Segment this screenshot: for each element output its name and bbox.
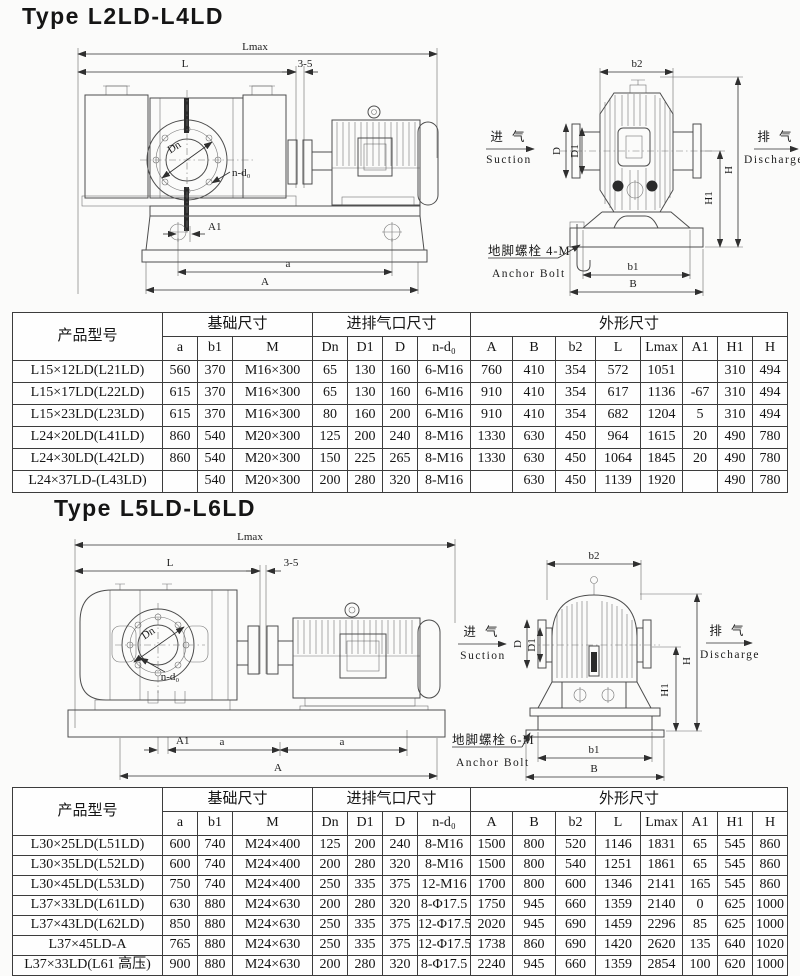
value-cell: 740 [198, 856, 233, 876]
col-group-outline: 外形尺寸 [471, 788, 788, 812]
value-cell: 100 [683, 956, 718, 976]
value-cell: 630 [163, 896, 198, 916]
value-cell: 310 [718, 405, 753, 427]
value-cell: 560 [163, 361, 198, 383]
value-cell: 1615 [641, 427, 683, 449]
value-cell: 880 [198, 936, 233, 956]
value-cell [163, 471, 198, 493]
dim-label-d1: D1 [526, 638, 538, 651]
table-row: L37×33LD(L61 高压)900880M24×6302002803208-… [13, 956, 788, 976]
value-cell: 160 [383, 383, 418, 405]
value-cell: 540 [198, 427, 233, 449]
value-cell: 320 [383, 856, 418, 876]
value-cell: 780 [753, 471, 788, 493]
value-cell: 660 [556, 956, 596, 976]
value-cell: 370 [198, 383, 233, 405]
model-cell: L37×33LD(L61 高压) [13, 956, 163, 976]
value-cell: 540 [198, 449, 233, 471]
dim-label-b: B [629, 278, 636, 290]
value-cell: 160 [383, 361, 418, 383]
col-header: B [513, 337, 556, 361]
col-header: A1 [683, 337, 718, 361]
value-cell: M16×300 [233, 405, 313, 427]
model-cell: L37×45LD-A [13, 936, 163, 956]
value-cell: 250 [313, 916, 348, 936]
drawing-l2ld-l4ld: Lmax L 3-5 [0, 38, 800, 308]
value-cell: 860 [753, 856, 788, 876]
value-cell: 8-M16 [418, 856, 471, 876]
value-cell: 520 [556, 836, 596, 856]
value-cell: 860 [753, 836, 788, 856]
value-cell: 310 [718, 383, 753, 405]
model-cell: L24×20LD(L41LD) [13, 427, 163, 449]
value-cell: 540 [556, 856, 596, 876]
value-cell: 964 [596, 427, 641, 449]
value-cell: 8-M16 [418, 471, 471, 493]
value-cell: 540 [198, 471, 233, 493]
value-cell: 494 [753, 405, 788, 427]
value-cell: 620 [718, 956, 753, 976]
value-cell: 625 [718, 896, 753, 916]
dim-label-h1: H1 [703, 191, 715, 204]
col-header: Lmax [641, 812, 683, 836]
value-cell: 860 [753, 876, 788, 896]
dim-label-h: H [681, 657, 693, 665]
value-cell: 310 [718, 361, 753, 383]
value-cell: 1000 [753, 896, 788, 916]
value-cell: 1750 [471, 896, 513, 916]
col-header: b1 [198, 337, 233, 361]
value-cell: 860 [163, 427, 198, 449]
value-cell: 850 [163, 916, 198, 936]
col-header: A [471, 337, 513, 361]
value-cell: 545 [718, 856, 753, 876]
value-cell: 200 [313, 856, 348, 876]
value-cell: 910 [471, 405, 513, 427]
model-cell: L30×45LD(L53LD) [13, 876, 163, 896]
col-header: D [383, 337, 418, 361]
value-cell: 320 [383, 896, 418, 916]
value-cell: 12-Φ17.5 [418, 916, 471, 936]
value-cell: 65 [683, 856, 718, 876]
dim-label-d: D [512, 640, 524, 648]
value-cell: 780 [753, 449, 788, 471]
value-cell: 370 [198, 361, 233, 383]
value-cell: 1146 [596, 836, 641, 856]
side-view-l5ld: Lmax L 3-5 Dn [68, 531, 455, 780]
dim-label-lmax: Lmax [242, 41, 268, 53]
value-cell: 320 [383, 956, 418, 976]
value-cell: M24×630 [233, 956, 313, 976]
value-cell: 490 [718, 449, 753, 471]
value-cell: 945 [513, 916, 556, 936]
value-cell: 6-M16 [418, 405, 471, 427]
value-cell: 335 [348, 876, 383, 896]
value-cell: 682 [596, 405, 641, 427]
value-cell: 945 [513, 896, 556, 916]
col-group-base: 基础尺寸 [163, 313, 313, 337]
value-cell: 490 [718, 427, 753, 449]
value-cell: 945 [513, 956, 556, 976]
value-cell: 765 [163, 936, 198, 956]
value-cell: 1251 [596, 856, 641, 876]
value-cell: 65 [313, 383, 348, 405]
value-cell: 450 [556, 427, 596, 449]
table-row: L15×12LD(L21LD)560370M16×300651301606-M1… [13, 361, 788, 383]
dim-label-h: H [723, 166, 735, 174]
value-cell: M16×300 [233, 383, 313, 405]
dim-label-a1: A1 [208, 221, 221, 233]
value-cell: 1459 [596, 916, 641, 936]
value-cell: 280 [348, 471, 383, 493]
value-cell: 165 [683, 876, 718, 896]
suction-label-cn: 进 气 [490, 129, 527, 144]
dim-label-ndo: n-d₀ [161, 671, 180, 683]
col-header: M [233, 812, 313, 836]
value-cell: 130 [348, 383, 383, 405]
value-cell: 1136 [641, 383, 683, 405]
value-cell: M16×300 [233, 361, 313, 383]
value-cell: 225 [348, 449, 383, 471]
model-cell: L15×23LD(L23LD) [13, 405, 163, 427]
value-cell: 910 [471, 383, 513, 405]
table-row: L30×35LD(L52LD)600740M24×4002002803208-M… [13, 856, 788, 876]
value-cell: 335 [348, 936, 383, 956]
value-cell: 690 [556, 936, 596, 956]
col-header: H [753, 337, 788, 361]
value-cell: 600 [163, 856, 198, 876]
dim-label-A: A [274, 762, 282, 774]
side-view-l2ld: Lmax L 3-5 [78, 41, 438, 294]
value-cell: 800 [513, 836, 556, 856]
value-cell: 1359 [596, 956, 641, 976]
value-cell: 1330 [471, 427, 513, 449]
dim-label-b1: b1 [628, 261, 639, 273]
value-cell: 320 [383, 471, 418, 493]
value-cell: 1700 [471, 876, 513, 896]
value-cell: 617 [596, 383, 641, 405]
value-cell: 1020 [753, 936, 788, 956]
value-cell: 880 [198, 896, 233, 916]
value-cell: 1330 [471, 449, 513, 471]
value-cell: M20×300 [233, 427, 313, 449]
value-cell: 200 [348, 836, 383, 856]
value-cell: 2620 [641, 936, 683, 956]
dim-label-ndo: n-d₀ [232, 167, 251, 179]
value-cell: 5 [683, 405, 718, 427]
value-cell: M24×630 [233, 896, 313, 916]
value-cell: 690 [556, 916, 596, 936]
value-cell: 1000 [753, 916, 788, 936]
value-cell: 125 [313, 427, 348, 449]
value-cell: 630 [513, 449, 556, 471]
value-cell: 1500 [471, 836, 513, 856]
value-cell: 375 [383, 876, 418, 896]
value-cell: 8-M16 [418, 427, 471, 449]
value-cell: 1920 [641, 471, 683, 493]
model-cell: L24×37LD-(L43LD) [13, 471, 163, 493]
value-cell: 6-M16 [418, 383, 471, 405]
value-cell: 8-Φ17.5 [418, 956, 471, 976]
value-cell: 335 [348, 916, 383, 936]
drawing-l5ld-l6ld: Lmax L 3-5 Dn [0, 528, 800, 785]
dim-label-A: A [261, 276, 269, 288]
value-cell: 135 [683, 936, 718, 956]
value-cell: 65 [313, 361, 348, 383]
col-header: H [753, 812, 788, 836]
value-cell: 860 [163, 449, 198, 471]
end-view-l5ld: b2 D D1 [452, 550, 760, 781]
section2-title: Type L5LD-L6LD [54, 495, 256, 522]
dim-label-l: L [182, 58, 189, 70]
col-header: M [233, 337, 313, 361]
table-row: L30×25LD(L51LD)600740M24×4001252002408-M… [13, 836, 788, 856]
anchor-label-en: Anchor Bolt [456, 757, 530, 769]
value-cell: 780 [753, 427, 788, 449]
col-header: b2 [556, 337, 596, 361]
value-cell: 200 [348, 427, 383, 449]
model-cell: L37×33LD(L61LD) [13, 896, 163, 916]
value-cell: 240 [383, 836, 418, 856]
model-cell: L30×25LD(L51LD) [13, 836, 163, 856]
value-cell: M24×630 [233, 936, 313, 956]
col-header: A1 [683, 812, 718, 836]
value-cell: 2141 [641, 876, 683, 896]
model-cell: L24×30LD(L42LD) [13, 449, 163, 471]
col-header: D [383, 812, 418, 836]
value-cell: 490 [718, 471, 753, 493]
value-cell: M20×300 [233, 449, 313, 471]
col-group-port: 进排气口尺寸 [313, 313, 471, 337]
value-cell: 200 [383, 405, 418, 427]
value-cell: 20 [683, 449, 718, 471]
suction-label-cn: 进 气 [463, 624, 500, 639]
value-cell: 12-M16 [418, 876, 471, 896]
value-cell: 880 [198, 956, 233, 976]
value-cell: 750 [163, 876, 198, 896]
col-header: A [471, 812, 513, 836]
value-cell: 1500 [471, 856, 513, 876]
col-header: n-d₀ [418, 337, 471, 361]
dim-label-b2: b2 [589, 550, 600, 562]
value-cell: 8-Φ17.5 [418, 896, 471, 916]
col-header: n-d₀ [418, 812, 471, 836]
value-cell: 354 [556, 405, 596, 427]
value-cell: 2140 [641, 896, 683, 916]
value-cell: 265 [383, 449, 418, 471]
dim-label-l: L [167, 557, 174, 569]
value-cell: 1346 [596, 876, 641, 896]
value-cell: 1204 [641, 405, 683, 427]
value-cell: 630 [513, 427, 556, 449]
model-cell: L15×17LD(L22LD) [13, 383, 163, 405]
catalog-page: Type L2LD-L4LD Lmax L 3-5 [0, 0, 800, 976]
dim-label-dn: Dn [139, 625, 157, 643]
value-cell: 370 [198, 405, 233, 427]
dim-label-a2: a [340, 736, 345, 748]
value-cell: 1139 [596, 471, 641, 493]
value-cell: 280 [348, 896, 383, 916]
anchor-label-cn: 地脚螺栓 4-M [488, 243, 571, 258]
table-row: L24×20LD(L41LD)860540M20×3001252002408-M… [13, 427, 788, 449]
col-group-outline: 外形尺寸 [471, 313, 788, 337]
col-header: Dn [313, 812, 348, 836]
value-cell: M24×400 [233, 836, 313, 856]
value-cell: 2296 [641, 916, 683, 936]
value-cell: 630 [513, 471, 556, 493]
dim-label-b: B [590, 763, 597, 775]
value-cell: 6-M16 [418, 361, 471, 383]
table-row: L15×23LD(L23LD)615370M16×300801602006-M1… [13, 405, 788, 427]
discharge-label-cn: 排 气 [757, 129, 794, 144]
col-header-model: 产品型号 [13, 313, 163, 361]
value-cell: 1000 [753, 956, 788, 976]
value-cell: 660 [556, 896, 596, 916]
value-cell: 280 [348, 856, 383, 876]
table-row: L37×43LD(L62LD)850880M24×63025033537512-… [13, 916, 788, 936]
value-cell: 250 [313, 876, 348, 896]
value-cell: 150 [313, 449, 348, 471]
col-header: H1 [718, 812, 753, 836]
discharge-label-cn: 排 气 [709, 623, 746, 638]
spec-table-l5ld-l6ld: 产品型号 基础尺寸 进排气口尺寸 外形尺寸 a b1 M Dn D1 D n-d… [12, 787, 788, 976]
value-cell: 80 [313, 405, 348, 427]
col-header: b2 [556, 812, 596, 836]
value-cell: 1738 [471, 936, 513, 956]
value-cell: 410 [513, 405, 556, 427]
value-cell: 600 [556, 876, 596, 896]
value-cell: M24×400 [233, 876, 313, 896]
value-cell: 494 [753, 361, 788, 383]
value-cell: 200 [313, 471, 348, 493]
value-cell: 600 [163, 836, 198, 856]
table-row: L24×37LD-(L43LD)540M20×3002002803208-M16… [13, 471, 788, 493]
value-cell: 760 [471, 361, 513, 383]
col-header: B [513, 812, 556, 836]
suction-label-en: Suction [486, 154, 532, 166]
value-cell: 2240 [471, 956, 513, 976]
value-cell: 450 [556, 471, 596, 493]
model-cell: L30×35LD(L52LD) [13, 856, 163, 876]
col-header: D1 [348, 812, 383, 836]
value-cell: M24×630 [233, 916, 313, 936]
value-cell: M24×400 [233, 856, 313, 876]
value-cell: 615 [163, 405, 198, 427]
col-header: a [163, 812, 198, 836]
value-cell: 160 [348, 405, 383, 427]
section1-title: Type L2LD-L4LD [22, 3, 224, 30]
dim-label-dn: Dn [165, 139, 183, 157]
value-cell [683, 361, 718, 383]
col-header: a [163, 337, 198, 361]
model-cell: L15×12LD(L21LD) [13, 361, 163, 383]
value-cell: 450 [556, 449, 596, 471]
value-cell: 410 [513, 361, 556, 383]
col-header: Dn [313, 337, 348, 361]
end-view-l2ld: b2 D D1 [486, 58, 800, 296]
value-cell: 20 [683, 427, 718, 449]
anchor-label-cn: 地脚螺栓 6-M [452, 732, 535, 747]
value-cell: 240 [383, 427, 418, 449]
dim-label-a1: A1 [176, 735, 189, 747]
value-cell: 280 [348, 956, 383, 976]
discharge-label-en: Discharge [744, 154, 800, 166]
col-header: b1 [198, 812, 233, 836]
value-cell: 8-M16 [418, 836, 471, 856]
value-cell: 1051 [641, 361, 683, 383]
value-cell: 354 [556, 383, 596, 405]
value-cell: 800 [513, 876, 556, 896]
dim-label-lmax: Lmax [237, 531, 263, 543]
value-cell: 545 [718, 876, 753, 896]
table-row: L30×45LD(L53LD)750740M24×40025033537512-… [13, 876, 788, 896]
value-cell: 545 [718, 836, 753, 856]
value-cell: 65 [683, 836, 718, 856]
value-cell: 1420 [596, 936, 641, 956]
value-cell: 615 [163, 383, 198, 405]
value-cell: 8-M16 [418, 449, 471, 471]
value-cell: 375 [383, 936, 418, 956]
anchor-label-en: Anchor Bolt [492, 268, 566, 280]
value-cell: 2854 [641, 956, 683, 976]
value-cell: 130 [348, 361, 383, 383]
col-header: L [596, 812, 641, 836]
value-cell: M20×300 [233, 471, 313, 493]
suction-label-en: Suction [460, 650, 506, 662]
value-cell: 800 [513, 856, 556, 876]
value-cell: 494 [753, 383, 788, 405]
spec-table-l2ld-l4ld: 产品型号 基础尺寸 进排气口尺寸 外形尺寸 a b1 M Dn D1 D n-d… [12, 312, 788, 493]
col-header: D1 [348, 337, 383, 361]
value-cell: 572 [596, 361, 641, 383]
col-header: L [596, 337, 641, 361]
col-group-port: 进排气口尺寸 [313, 788, 471, 812]
value-cell: 740 [198, 836, 233, 856]
value-cell: 625 [718, 916, 753, 936]
value-cell: 0 [683, 896, 718, 916]
value-cell: 1064 [596, 449, 641, 471]
value-cell: -67 [683, 383, 718, 405]
dim-label-a: a [286, 258, 291, 270]
col-header: Lmax [641, 337, 683, 361]
value-cell: 1845 [641, 449, 683, 471]
dim-label-gap: 3-5 [284, 557, 299, 569]
value-cell: 1861 [641, 856, 683, 876]
value-cell: 1831 [641, 836, 683, 856]
model-cell: L37×43LD(L62LD) [13, 916, 163, 936]
value-cell: 900 [163, 956, 198, 976]
value-cell [683, 471, 718, 493]
table-row: L37×45LD-A765880M24×63025033537512-Φ17.5… [13, 936, 788, 956]
value-cell: 85 [683, 916, 718, 936]
dim-label-d1: D1 [569, 144, 581, 157]
table-row: L24×30LD(L42LD)860540M20×3001502252658-M… [13, 449, 788, 471]
value-cell: 375 [383, 916, 418, 936]
value-cell: 12-Φ17.5 [418, 936, 471, 956]
dim-label-h1: H1 [659, 683, 671, 696]
dim-label-a: a [220, 736, 225, 748]
value-cell: 740 [198, 876, 233, 896]
dim-label-d: D [551, 147, 563, 155]
dim-label-gap: 3-5 [298, 58, 313, 70]
value-cell: 250 [313, 936, 348, 956]
value-cell: 125 [313, 836, 348, 856]
col-header-model: 产品型号 [13, 788, 163, 836]
col-group-base: 基础尺寸 [163, 788, 313, 812]
dim-label-b2: b2 [632, 58, 643, 70]
value-cell [471, 471, 513, 493]
value-cell: 640 [718, 936, 753, 956]
